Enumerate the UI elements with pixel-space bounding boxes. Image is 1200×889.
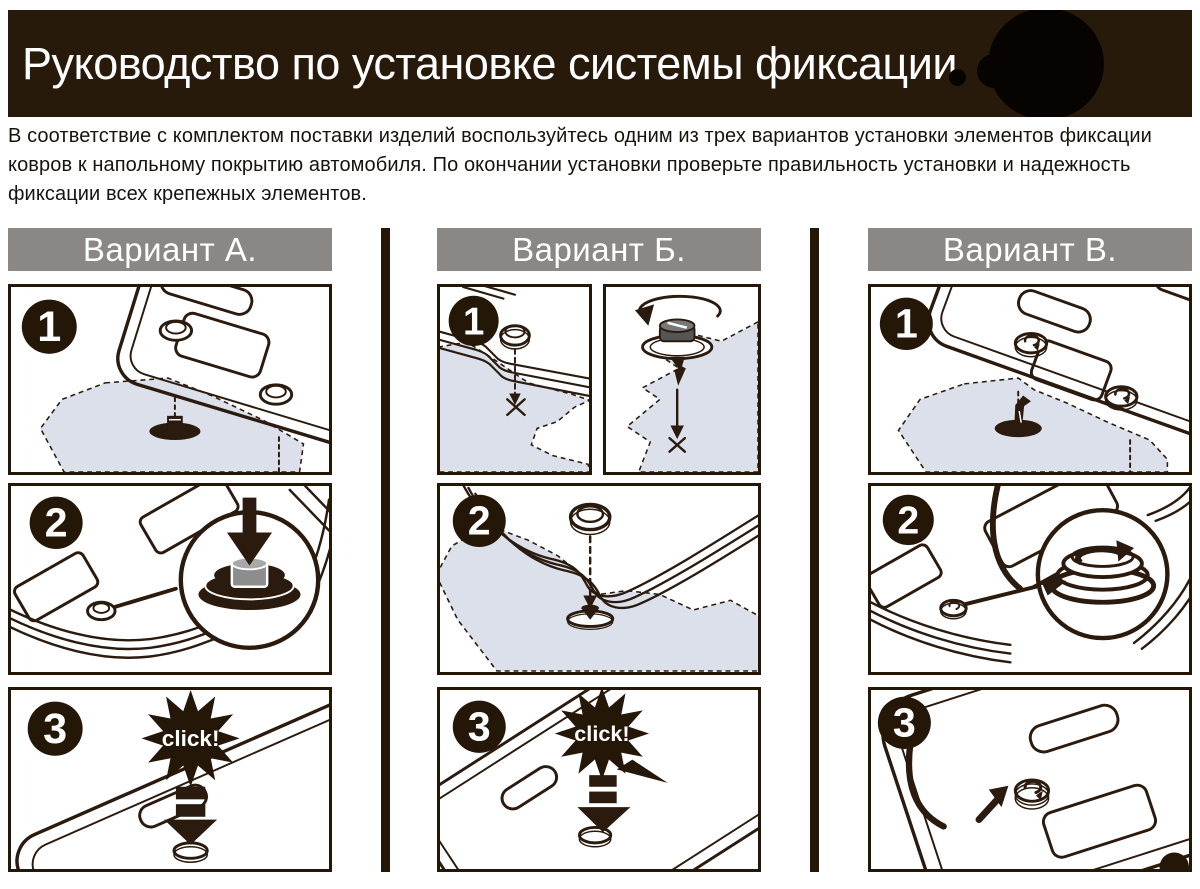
turn-lock-illustration: 3 bbox=[871, 690, 1189, 869]
mark-position-illustration: 1 bbox=[440, 287, 589, 472]
mat-stud bbox=[160, 321, 191, 340]
variant-b-header: Вариант Б. bbox=[437, 228, 761, 271]
click-label: click! bbox=[574, 722, 629, 746]
variant-c-step-1-panel: 1 bbox=[868, 284, 1192, 475]
header-bar: Руководство по установке системы фиксаци… bbox=[8, 10, 1192, 117]
variant-a-step-3-panel: click! 3 bbox=[8, 687, 332, 872]
brand-logo-dot-icon bbox=[949, 69, 966, 86]
variant-b-step-1-right-panel bbox=[603, 284, 761, 475]
intro-text: В соответствие с комплектом поставки изд… bbox=[8, 122, 1192, 209]
mat-stud bbox=[174, 843, 207, 862]
mat-over-carpet-illustration: 1 bbox=[11, 287, 329, 472]
variant-b-step-3-panel: click! 3 bbox=[437, 687, 761, 872]
click-lock-illustration: click! 3 bbox=[11, 690, 329, 869]
mat-stud bbox=[579, 827, 610, 846]
variant-b-label: Вариант Б. bbox=[512, 231, 686, 269]
step-badge: 2 bbox=[30, 497, 83, 549]
click-starburst: click! bbox=[555, 690, 668, 783]
corner-fastener-dot bbox=[1160, 853, 1189, 869]
variant-a-step-2-panel: 2 bbox=[8, 483, 332, 675]
step-badge: 3 bbox=[28, 702, 83, 756]
step-number: 1 bbox=[895, 301, 918, 347]
variant-c-label: Вариант В. bbox=[943, 231, 1117, 269]
variant-c-header: Вариант В. bbox=[868, 228, 1192, 271]
click-starburst: click! bbox=[142, 690, 240, 787]
variant-b-step-1-left-panel: 1 bbox=[437, 284, 592, 475]
step-number: 3 bbox=[468, 704, 491, 750]
turn-lock-stud bbox=[1106, 387, 1137, 410]
step-badge: 3 bbox=[878, 697, 931, 749]
click-lock-illustration: click! 3 bbox=[440, 690, 758, 869]
push-down-arrow bbox=[577, 775, 630, 832]
fastener-clip bbox=[167, 416, 183, 429]
step-badge: 1 bbox=[880, 298, 933, 350]
step-number: 3 bbox=[43, 705, 67, 753]
brand-logo-icon bbox=[988, 10, 1104, 117]
instruction-sheet: Руководство по установке системы фиксаци… bbox=[0, 0, 1200, 889]
turn-fastener-illustration: 2 bbox=[871, 486, 1189, 672]
mat-stud bbox=[501, 326, 530, 349]
variant-b-step-2-panel: 2 bbox=[437, 483, 761, 675]
step-badge: 3 bbox=[453, 701, 506, 753]
column-divider bbox=[810, 228, 819, 872]
step-badge: 1 bbox=[449, 296, 499, 346]
variant-c-step-2-panel: 2 bbox=[868, 483, 1192, 675]
step-badge: 2 bbox=[453, 495, 506, 547]
step-number: 2 bbox=[897, 500, 919, 543]
press-fastener-illustration: 2 bbox=[11, 486, 329, 672]
click-label: click! bbox=[162, 726, 220, 751]
mat-stud bbox=[260, 385, 291, 404]
rotate-arrow-head bbox=[635, 304, 654, 325]
mat-over-carpet-illustration: 1 bbox=[871, 287, 1189, 472]
screw-in-fastener-illustration bbox=[606, 287, 758, 472]
magnifier-detail bbox=[181, 498, 318, 648]
variant-a-step-1-panel: 1 bbox=[8, 284, 332, 475]
turn-lock-stud bbox=[1015, 333, 1046, 356]
align-stud-illustration: 2 bbox=[440, 486, 758, 672]
variant-c-step-3-panel: 3 bbox=[868, 687, 1192, 872]
step-number: 1 bbox=[37, 303, 61, 351]
step-number: 2 bbox=[45, 500, 68, 546]
page-title: Руководство по установке системы фиксаци… bbox=[22, 38, 957, 90]
step-badge: 1 bbox=[22, 300, 77, 354]
mat-stud bbox=[88, 602, 115, 619]
step-badge: 2 bbox=[883, 495, 934, 545]
variant-a-label: Вариант А. bbox=[83, 231, 257, 269]
press-arrow bbox=[243, 498, 257, 535]
turn-lock-stud bbox=[941, 600, 967, 618]
step-number: 1 bbox=[463, 300, 484, 343]
turn-lock-stud bbox=[1015, 780, 1048, 809]
step-number: 2 bbox=[468, 498, 491, 544]
magnifier-detail bbox=[1032, 510, 1167, 638]
mat-stud bbox=[571, 504, 610, 534]
column-divider bbox=[381, 228, 390, 872]
variant-a-header: Вариант А. bbox=[8, 228, 332, 271]
step-number: 3 bbox=[893, 700, 916, 746]
